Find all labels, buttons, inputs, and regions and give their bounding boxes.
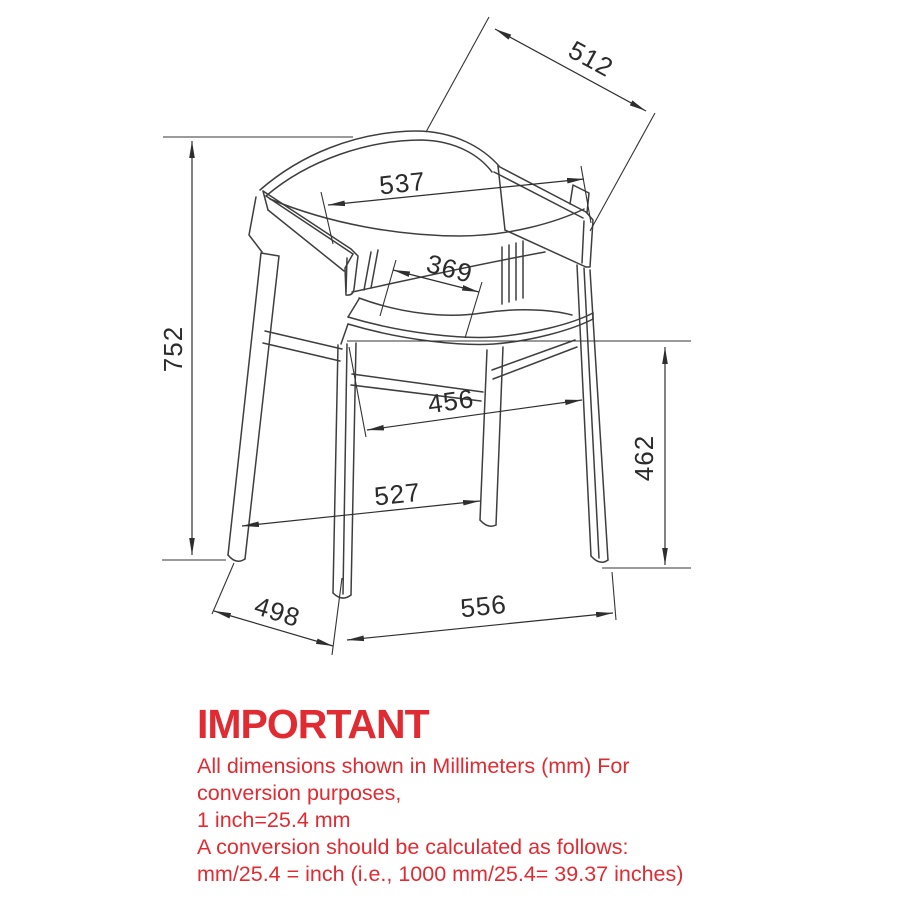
notice-line-3: 1 inch=25.4 mm xyxy=(197,807,697,834)
dimension-527: 527 xyxy=(242,477,480,526)
notice-line-4: A conversion should be calculated as fol… xyxy=(197,834,697,861)
dim-label-556: 556 xyxy=(459,589,508,624)
back-slat-right-1 xyxy=(502,245,509,304)
notice-line-5: mm/25.4 = inch (i.e., 1000 mm/25.4= 39.3… xyxy=(197,861,697,888)
leg-back-right xyxy=(577,265,608,560)
leg-front-right xyxy=(480,347,503,525)
dimension-annotations: 752 512 537 369 456 xyxy=(158,17,691,655)
armrest-right-bottom-edge xyxy=(505,230,586,267)
dimension-369: 369 xyxy=(380,248,482,338)
armrest-right-front-face xyxy=(586,212,593,267)
notice-heading: IMPORTANT xyxy=(197,702,697,746)
dim-label-537: 537 xyxy=(378,166,427,201)
leg-back-left xyxy=(228,253,279,559)
seat-left-edge xyxy=(348,299,359,317)
dimension-462: 462 xyxy=(347,341,691,568)
armrest-right-front-inner xyxy=(582,221,584,263)
armrest-left-top-edge xyxy=(263,191,351,249)
chair-linework xyxy=(228,131,608,598)
dimension-537: 537 xyxy=(321,166,591,244)
seat-leg-joint xyxy=(341,324,348,344)
dim-label-498: 498 xyxy=(251,590,304,633)
dim-label-369: 369 xyxy=(424,248,476,289)
armrest-left-front-tip-inner xyxy=(346,258,347,292)
dim-label-527: 527 xyxy=(373,477,422,512)
dim-label-462: 462 xyxy=(629,435,659,481)
technical-drawing-page: 752 512 537 369 456 xyxy=(0,0,900,900)
leg-front-left-tip xyxy=(333,593,351,598)
notice-line-2: conversion purposes, xyxy=(197,780,697,807)
leg-front-left xyxy=(333,343,356,595)
dimension-512: 512 xyxy=(426,17,655,231)
dim-label-752: 752 xyxy=(158,326,188,372)
dimension-498: 498 xyxy=(212,563,333,646)
dim-label-512: 512 xyxy=(564,35,619,84)
dimension-456: 456 xyxy=(349,347,582,437)
leg-back-left-tip xyxy=(228,555,245,561)
leg-front-right-tip xyxy=(480,520,496,526)
back-slat-left xyxy=(364,250,378,290)
seat-rear-edge xyxy=(359,298,572,315)
notice-line-1: All dimensions shown in Millimeters (mm)… xyxy=(197,753,697,780)
back-slat-right-2 xyxy=(516,241,523,300)
rail-right xyxy=(492,340,577,379)
armrest-right-top-edge2 xyxy=(494,172,583,218)
dimension-556: 556 xyxy=(332,572,616,655)
dim-label-456: 456 xyxy=(426,383,476,419)
rail-left xyxy=(263,331,342,361)
backrest-left-tip xyxy=(249,197,262,252)
conversion-notice: IMPORTANT All dimensions shown in Millim… xyxy=(197,702,697,888)
armrest-left-top-edge2 xyxy=(266,196,353,254)
